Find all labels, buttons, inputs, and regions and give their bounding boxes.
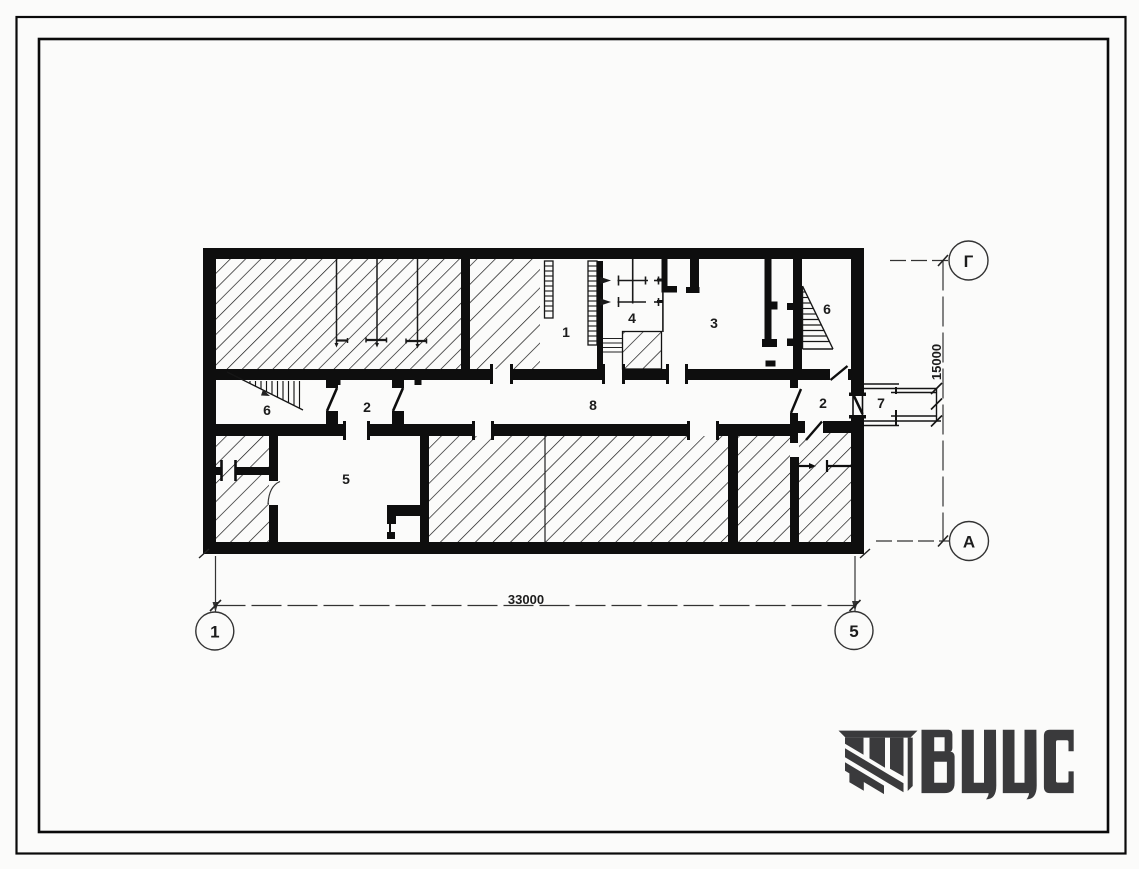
svg-text:5: 5 bbox=[342, 471, 350, 487]
svg-text:15000: 15000 bbox=[929, 344, 944, 380]
svg-text:33000: 33000 bbox=[508, 592, 544, 607]
svg-text:6: 6 bbox=[823, 301, 831, 317]
svg-text:6: 6 bbox=[263, 402, 271, 418]
svg-text:Г: Г bbox=[964, 252, 974, 271]
svg-text:7: 7 bbox=[877, 395, 885, 411]
svg-text:8: 8 bbox=[589, 397, 597, 413]
svg-text:А: А bbox=[963, 533, 975, 552]
svg-text:3: 3 bbox=[710, 315, 718, 331]
svg-text:4: 4 bbox=[628, 310, 636, 326]
svg-text:1: 1 bbox=[562, 324, 570, 340]
svg-text:1: 1 bbox=[210, 623, 219, 642]
svg-text:2: 2 bbox=[819, 395, 827, 411]
svg-text:5: 5 bbox=[849, 622, 858, 641]
svg-text:2: 2 bbox=[363, 399, 371, 415]
